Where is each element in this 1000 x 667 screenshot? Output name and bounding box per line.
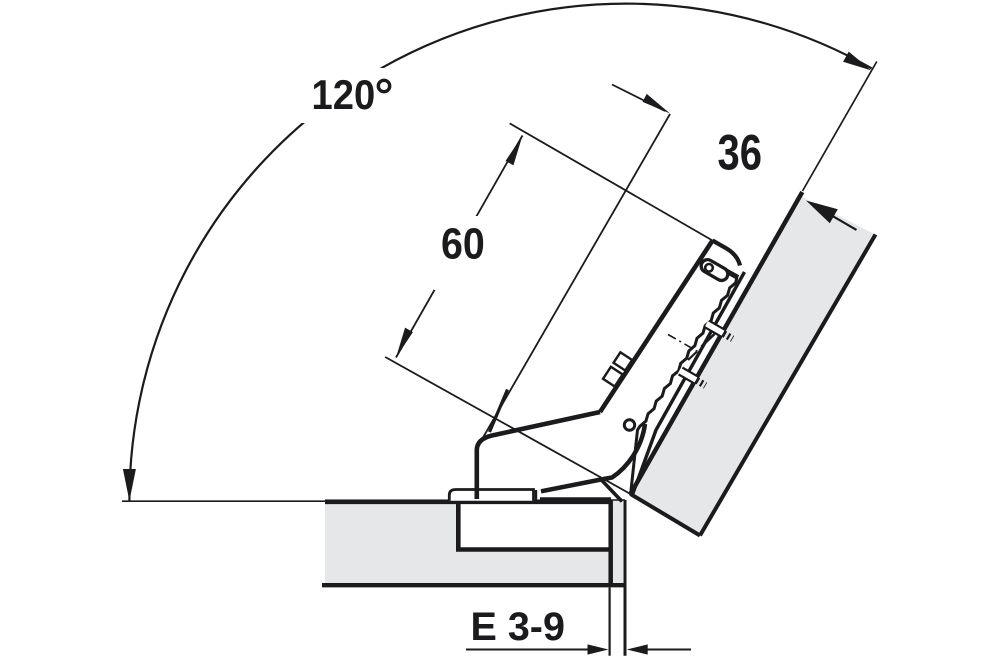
svg-text:E 3-9: E 3-9 — [471, 605, 565, 649]
svg-text:60: 60 — [441, 220, 485, 268]
svg-text:36: 36 — [718, 124, 762, 180]
svg-text:120: 120 — [312, 73, 376, 119]
